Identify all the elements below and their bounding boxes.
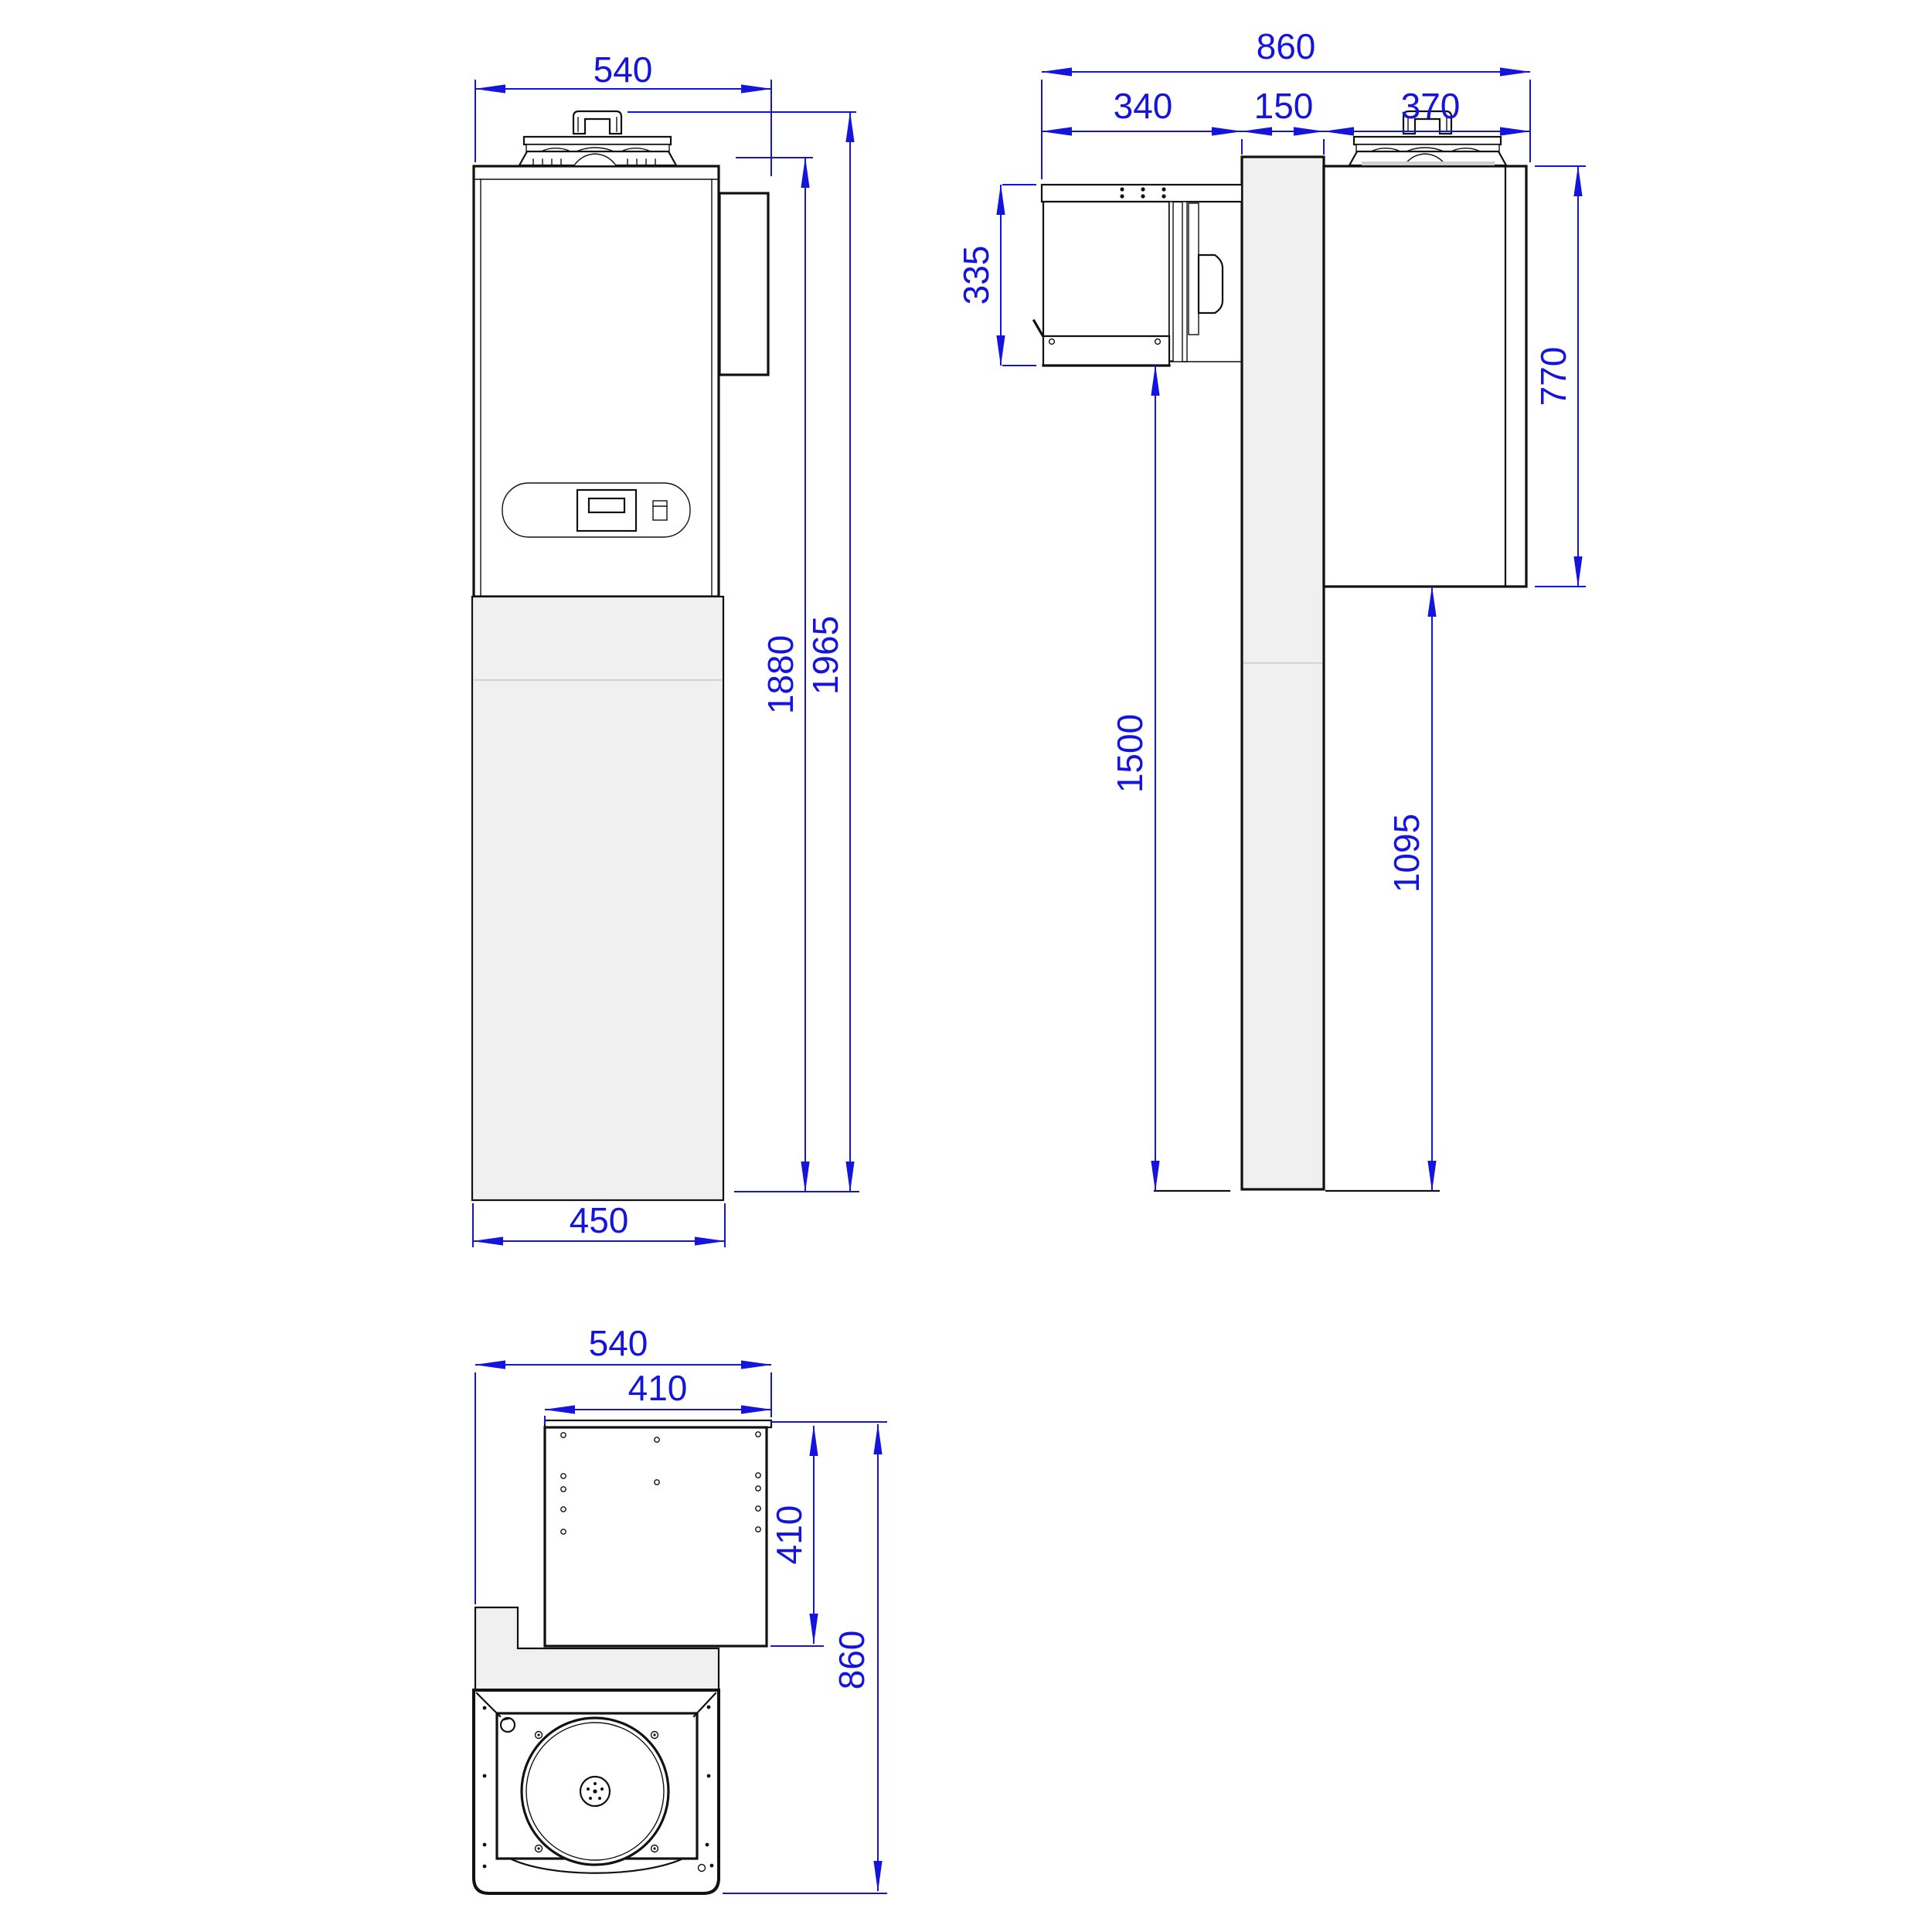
dim-label: 410: [769, 1505, 809, 1565]
drain-pan: [1043, 336, 1169, 366]
fan-assembly-front-icon: [519, 111, 676, 165]
technical-drawing-page: 540 450 1880 1965: [0, 0, 1932, 1932]
dim-label: 860: [1257, 26, 1316, 66]
dim-label: 450: [570, 1200, 629, 1240]
power-switch-icon: [653, 501, 667, 520]
dim-label: 340: [1114, 86, 1173, 126]
dim-label: 540: [594, 49, 653, 90]
dim-side-inside-floor-clearance: 1500: [1110, 366, 1155, 1191]
display-icon: [589, 498, 624, 512]
top-body: [545, 1420, 771, 1646]
front-view: 540 450 1880 1965: [472, 49, 859, 1247]
condenser-fan-face: [474, 1690, 719, 1893]
dim-label: 1880: [760, 635, 801, 714]
dim-label: 540: [589, 1323, 648, 1363]
dim-side-outside-floor-clearance: 1095: [1386, 587, 1432, 1191]
dim-top-inner-depth: 410: [769, 1422, 887, 1646]
dim-side-inside-unit-height: 335: [956, 185, 1036, 366]
dim-label: 770: [1533, 347, 1573, 406]
dim-side-outside-unit-height: 770: [1533, 166, 1586, 587]
condensing-unit: [1324, 111, 1526, 587]
dim-label: 410: [628, 1368, 688, 1408]
side-view: 860 340 150 370 335 1500: [956, 26, 1586, 1191]
dim-label: 335: [956, 246, 996, 305]
side-duct-box: [719, 193, 768, 375]
dim-front-bottom-width: 450: [473, 1200, 725, 1247]
dim-label: 370: [1401, 86, 1461, 126]
top-view: 540 410 410 860: [474, 1323, 887, 1893]
dim-label: 1500: [1110, 714, 1150, 793]
evaporator-unit: [1034, 185, 1242, 366]
dim-top-inner-width: 410: [545, 1368, 771, 1424]
dim-label: 1095: [1386, 814, 1427, 893]
dim-label: 1965: [805, 616, 845, 695]
wall-section: [1242, 157, 1324, 1189]
control-panel: [502, 483, 690, 537]
dim-label: 150: [1254, 86, 1314, 126]
fan-motor-bracket: [1199, 255, 1223, 313]
dim-label: 860: [832, 1631, 872, 1690]
fan-icon: [522, 1718, 668, 1865]
front-lower-panel: [472, 597, 723, 1200]
monoblock-dimension-drawing: 540 450 1880 1965: [0, 0, 1932, 1932]
